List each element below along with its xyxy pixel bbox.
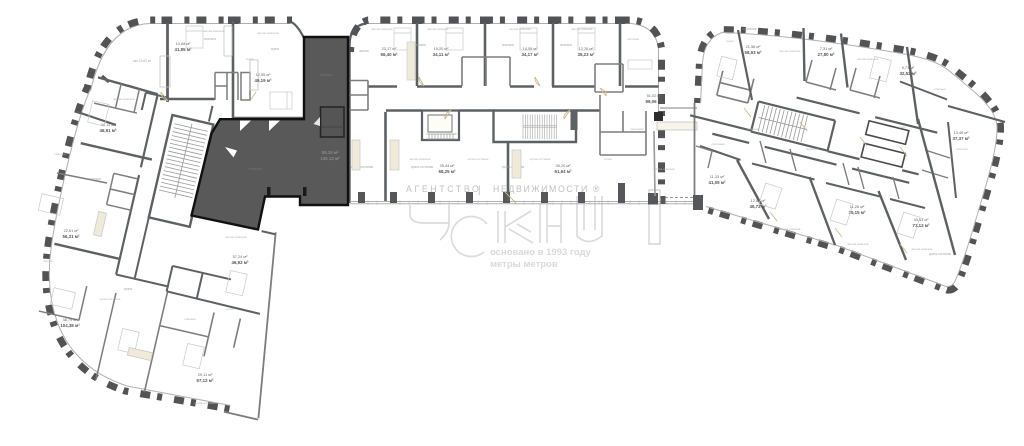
svg-text:жилая комната: жилая комната — [114, 97, 135, 101]
svg-text:жилая комната: жилая комната — [372, 27, 393, 31]
svg-text:46,92 м²: 46,92 м² — [232, 260, 249, 265]
svg-text:34,11 м²: 34,11 м² — [101, 122, 116, 127]
svg-text:35,20 м²: 35,20 м² — [556, 163, 571, 168]
svg-text:35,44 м²: 35,44 м² — [440, 163, 455, 168]
svg-text:жилая комната: жилая комната — [204, 29, 225, 33]
svg-text:кухня-гостиная: кухня-гостиная — [411, 165, 433, 169]
svg-text:41,05 м²: 41,05 м² — [709, 180, 726, 185]
svg-text:основано в 1993 году: основано в 1993 году — [490, 247, 592, 258]
svg-text:жилая комната: жилая комната — [410, 157, 431, 161]
svg-text:спальня: спальня — [204, 37, 216, 41]
svg-text:жилая комната: жилая комната — [858, 57, 879, 61]
svg-text:104,38 м²: 104,38 м² — [60, 323, 80, 328]
svg-text:кухня: кухня — [604, 157, 612, 161]
svg-text:34,17 м²: 34,17 м² — [522, 52, 539, 57]
svg-text:жилая: жилая — [44, 259, 53, 263]
svg-text:57,12 м²: 57,12 м² — [197, 378, 214, 383]
svg-text:жилая комната: жилая комната — [258, 31, 279, 35]
svg-text:кухня: кухня — [124, 287, 132, 291]
svg-text:прихожая: прихожая — [711, 142, 725, 146]
svg-text:12,95 м²: 12,95 м² — [256, 72, 271, 77]
svg-text:22,61 м²: 22,61 м² — [64, 228, 79, 233]
svg-text:спальня: спальня — [956, 147, 968, 151]
svg-text:жилая комната: жилая комната — [654, 167, 675, 171]
svg-text:46,73 м²: 46,73 м² — [750, 204, 767, 209]
svg-text:кухня-гостиная: кухня-гостиная — [530, 157, 551, 161]
svg-text:126,13 м²: 126,13 м² — [320, 156, 340, 161]
svg-text:11,33 м²: 11,33 м² — [710, 174, 725, 179]
svg-text:спальня: спальня — [502, 43, 514, 47]
svg-text:жилая комната: жилая комната — [572, 27, 593, 31]
svg-text:гостиная: гостиная — [744, 27, 757, 31]
svg-text:жилая комната: жилая комната — [780, 49, 801, 53]
svg-text:спальня: спальня — [89, 177, 101, 181]
svg-text:кухня: кухня — [898, 125, 906, 129]
svg-text:спальня: спальня — [320, 73, 332, 77]
svg-text:гостиная: гостиная — [627, 37, 640, 41]
svg-text:жилая: жилая — [359, 49, 369, 53]
svg-text:метры метров: метры метров — [490, 259, 558, 270]
svg-text:кухня-гостиная: кухня-гостиная — [929, 252, 951, 256]
svg-text:43,63 м²: 43,63 м² — [914, 217, 929, 222]
svg-text:кухня: кухня — [226, 307, 234, 311]
svg-text:кухня: кухня — [246, 57, 254, 61]
svg-text:35,23 м²: 35,23 м² — [578, 52, 595, 57]
svg-text:жилая комната: жилая комната — [780, 227, 801, 231]
svg-text:кухня: кухня — [271, 47, 279, 51]
svg-text:жилая комната: жилая комната — [428, 27, 449, 31]
svg-text:49,19 м²: 49,19 м² — [255, 78, 272, 83]
svg-text:спальня: спальня — [184, 317, 196, 321]
svg-text:27,80 м²: 27,80 м² — [818, 52, 835, 57]
svg-text:56,31 м²: 56,31 м² — [63, 234, 80, 239]
svg-text:29,11 м²: 29,11 м² — [198, 372, 213, 377]
svg-text:жилая комната: жилая комната — [912, 247, 933, 251]
svg-text:кухня-гостиная: кухня-гостиная — [468, 157, 489, 161]
svg-text:13,46 м²: 13,46 м² — [954, 130, 969, 135]
svg-text:спальня: спальня — [414, 43, 426, 47]
svg-text:21,56 м²: 21,56 м² — [746, 44, 761, 49]
svg-text:13,68 м²: 13,68 м² — [176, 41, 191, 46]
svg-text:61,64 м²: 61,64 м² — [555, 169, 572, 174]
svg-text:68,25 м²: 68,25 м² — [439, 169, 456, 174]
svg-text:прихожая: прихожая — [630, 127, 644, 131]
svg-text:51,02 м²: 51,02 м² — [647, 93, 662, 98]
svg-text:гостиная: гостиная — [249, 167, 262, 171]
svg-text:99,06 м²: 99,06 м² — [646, 99, 663, 104]
svg-text:7,31 м²: 7,31 м² — [820, 46, 833, 51]
svg-text:жилая комната: жилая комната — [848, 242, 869, 246]
svg-text:спальня: спальня — [54, 152, 66, 156]
svg-text:гардероб: гардероб — [806, 147, 819, 151]
svg-text:56,40 м²: 56,40 м² — [381, 52, 398, 57]
svg-text:спальня: спальня — [934, 87, 946, 91]
svg-text:12,87 м²: 12,87 м² — [751, 198, 766, 203]
svg-text:71,12 м²: 71,12 м² — [913, 223, 930, 228]
svg-text:32,52 м²: 32,52 м² — [900, 71, 917, 76]
svg-text:9,71 м²: 9,71 м² — [902, 65, 915, 70]
svg-text:спальня: спальня — [747, 127, 759, 131]
svg-text:|: | — [478, 185, 481, 196]
svg-text:59,19 м²: 59,19 м² — [322, 150, 339, 155]
svg-text:спальня: спальня — [560, 43, 572, 47]
svg-text:кухня: кухня — [726, 39, 734, 43]
svg-text:34,11 м²: 34,11 м² — [433, 52, 450, 57]
svg-text:кухня-гостиная: кухня-гостиная — [195, 401, 216, 405]
svg-text:58,93 м²: 58,93 м² — [745, 50, 762, 55]
svg-text:48,79 м²: 48,79 м² — [63, 317, 78, 322]
svg-text:37,37 м²: 37,37 м² — [953, 136, 970, 141]
svg-text:кухня-гостиная: кухня-гостиная — [100, 297, 121, 301]
svg-text:зал 20,63 м²: зал 20,63 м² — [133, 59, 151, 63]
svg-text:46,91 м²: 46,91 м² — [100, 128, 117, 133]
svg-text:57,24 м²: 57,24 м² — [233, 254, 248, 259]
svg-text:жилая комната: жилая комната — [226, 235, 247, 239]
